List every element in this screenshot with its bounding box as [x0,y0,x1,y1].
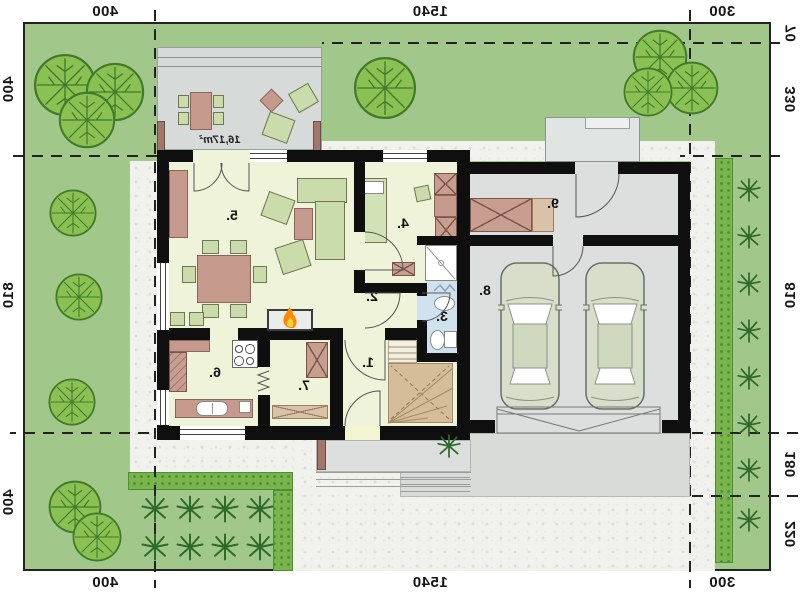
dim-side-400a: 400 [1,52,17,126]
plant-pot [170,312,185,326]
mirrored-plan: 1. 2. 3. 4. 5. 6. 7. 8. 9. 16,17m² 300 1… [0,0,800,593]
desk-chair [414,185,432,203]
dining-chair [253,266,267,283]
terrace-chair [213,95,224,108]
dim-bottom-400: 400 [65,574,145,591]
dim-bottom-1540: 1540 [370,574,490,591]
path-south [157,440,293,472]
dim-bottom-300: 300 [682,574,762,591]
room-label-7: 7. [292,377,316,393]
terrace-chair [213,112,224,125]
dim-side-400b: 400 [1,465,17,539]
gridline-setback-180 [690,495,798,497]
dim-side-180: 180 [783,427,799,501]
path-side-garage [690,161,715,571]
room-label-5: 5. [220,207,244,223]
sofa-back [297,178,347,203]
terrace-chair [178,112,189,125]
dim-top-300: 300 [682,3,762,20]
window-bedroom [383,150,427,162]
kitchen-opening [210,328,238,340]
room-label-9: 9. [541,195,565,211]
terrace-roof-line-1 [157,57,322,58]
utility-garage-opening [553,235,583,246]
gridline-setback-330 [680,155,780,157]
dining-chair [182,266,196,283]
terrace-post-right [157,121,165,152]
hall-cabinet [392,262,415,276]
plant-pot [189,312,204,326]
fireplace [267,309,313,331]
stove [232,340,258,368]
shower [425,245,457,281]
sofa-chaise [315,201,345,260]
room-label-8: 8. [473,282,497,298]
bathroom-door-opening [417,296,427,320]
dim-top-1540: 1540 [370,3,490,20]
coffee-table [294,208,313,240]
small-appliance [239,401,251,413]
entrance-porch [316,440,471,472]
room-label-1: 1. [356,354,380,370]
kitchen-counter-side [169,352,187,392]
garage-door-opening [495,420,662,433]
terrace-roof-line-2 [157,66,322,67]
dim-side-810b: 810 [1,258,17,332]
toilet-bowl [430,330,445,350]
hedge-garden-top [128,472,293,490]
sideboard [169,170,188,238]
hedge-garden-side [273,490,293,571]
window-kitchen-south [180,426,245,440]
toilet-tank [444,331,457,348]
utility-cabinet [470,198,532,232]
room-label-6: 6. [203,364,227,380]
wall-corridor-hall [385,328,420,340]
hall-door-opening [343,328,385,340]
wardrobe [434,173,457,195]
utility-door-opening [575,162,618,174]
gridline-setback-70 [322,42,780,44]
storage-shelves [272,405,328,419]
stairs-winder [388,363,453,423]
wall-bathroom-south [417,353,457,362]
entrance-steps [316,472,471,493]
terrace-area-label: 16,17m² [190,134,250,146]
dim-side-220: 220 [783,497,799,571]
window-living [250,150,287,162]
wall-garage-west [678,162,690,433]
terrace-table [190,92,212,130]
dining-chair [202,304,219,318]
hedge-strip-side [715,158,733,563]
window-kitchen-side [157,390,169,425]
window-living-side [157,263,169,330]
stairs-upper [388,340,417,363]
wall-hall-storage [330,328,343,426]
dim-side-330: 330 [783,62,799,136]
dining-table [197,255,251,303]
dim-side-810: 810 [783,258,799,332]
dining-chair [230,304,247,318]
storage-cabinet [306,342,328,378]
room-label-4: 4. [391,215,415,231]
wall-living-kitchen [169,328,342,340]
gridline-setback-810a [690,432,798,434]
dining-chair [230,240,247,254]
path-side-house [130,161,157,472]
front-door-opening [345,426,380,440]
dim-side-70: 70 [783,10,799,56]
dining-chair [202,240,219,254]
back-porch-step [585,117,630,129]
sink-divider [212,403,213,414]
wall-garage-divider [457,162,470,426]
dim-top-400: 400 [65,3,145,20]
gridline-vertical-1 [154,10,156,588]
room-label-2: 2. [360,288,384,304]
floor-plan-image: 1. 2. 3. 4. 5. 6. 7. 8. 9. 16,17m² 300 1… [0,0,800,593]
terrace-door-opening [193,150,250,162]
kitchen-counter [169,340,210,352]
storage-kitchen-opening [258,367,270,395]
terrace-chair [178,95,189,108]
bedroom-door-opening [354,232,365,270]
wall-bathroom-north [417,236,457,245]
gridline-setback-400 [10,155,157,157]
terrace-post-left [313,121,321,152]
room-label-3: 3. [430,308,454,324]
desk [434,195,457,217]
